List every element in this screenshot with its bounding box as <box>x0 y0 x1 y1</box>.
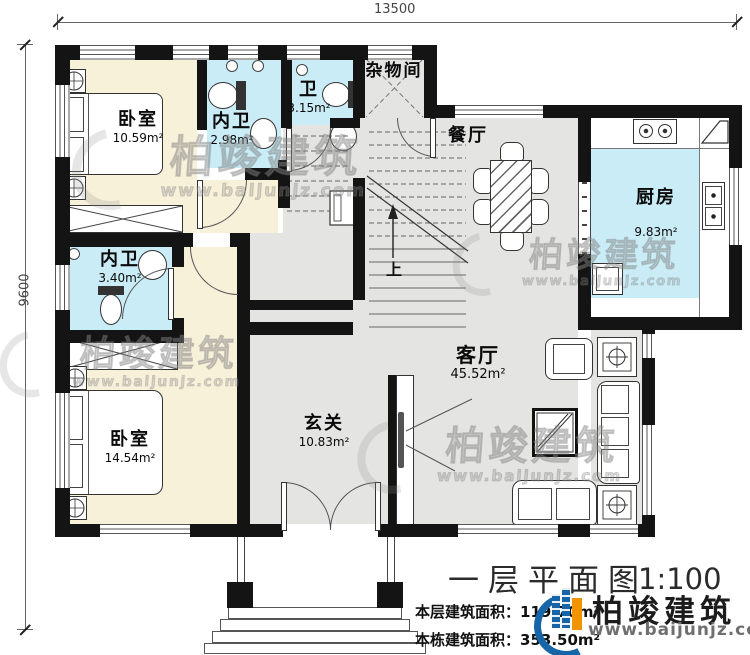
wall-ensuite2-bottom <box>55 330 175 343</box>
porch-step-4 <box>204 643 426 654</box>
stairhall-door-leaf <box>286 128 292 172</box>
wall-kitchen-top <box>578 105 742 118</box>
label-kitchen: 厨房 9.83m² <box>628 188 684 239</box>
brand-logo-icon <box>534 586 590 650</box>
foyer-name: 玄关 <box>296 414 352 434</box>
window-top-4 <box>287 45 320 60</box>
wall-kitchen-left-lower <box>578 254 591 330</box>
window-top-3 <box>228 45 258 60</box>
floor-area-label: 本层建筑面积： <box>415 603 520 621</box>
wc-name: 卫 <box>286 80 332 100</box>
kitchen-area: 9.83m² <box>628 226 684 239</box>
bedroom2-name: 卧室 <box>101 430 159 450</box>
label-ensuite2: 内卫 3.40m² <box>92 250 148 285</box>
coffee-table-detail <box>535 411 575 454</box>
dining-name: 餐厅 <box>441 126 495 146</box>
kitchen-sink-basin-2 <box>705 207 722 226</box>
sofa-bottom-seat-2 <box>556 488 590 520</box>
wall-storage-right <box>424 45 437 118</box>
ensuite1-area: 2.98m² <box>203 134 261 147</box>
left-dimension-label: 9600 <box>18 273 33 306</box>
sofa-right-seat-1 <box>601 385 629 414</box>
storage-name: 杂物间 <box>358 62 430 81</box>
porch-step-1 <box>228 607 402 619</box>
ensuite2-name: 内卫 <box>92 250 148 270</box>
side-table-top-crosshair <box>602 342 632 372</box>
wall-ensuite2-right-a <box>172 247 184 267</box>
kitchen-burner-2 <box>658 124 672 138</box>
porch-post-line-left <box>237 537 245 582</box>
logo-bar-3 <box>572 598 582 630</box>
floor-plan: 13500 9600 <box>0 0 750 655</box>
window-living-east-b <box>642 425 655 515</box>
living-name: 客厅 <box>447 344 509 366</box>
window-living-bottom-b <box>590 524 638 537</box>
sofa-right-seat-3 <box>601 449 629 478</box>
logo-bar-2 <box>562 588 570 628</box>
window-left-bedroom1 <box>55 85 70 157</box>
kitchen-fridge-inner <box>596 267 619 291</box>
sofa-bottom-seat-1 <box>518 488 552 520</box>
kitchen-sliding-door <box>578 182 591 254</box>
tv-leader-lines <box>400 393 478 473</box>
kitchen-corner-shelf <box>700 119 729 145</box>
bed1-divider <box>88 94 89 174</box>
window-left-bedroom2 <box>55 393 70 488</box>
window-dining-north <box>455 105 543 118</box>
stairs-up-label: 上 <box>386 256 402 280</box>
porch-column-left <box>227 582 253 608</box>
entry-door-right-leaf <box>375 482 381 531</box>
wall-below-bedroom1-a <box>55 233 193 247</box>
label-foyer: 玄关 10.83m² <box>296 414 352 449</box>
bedroom2-area: 14.54m² <box>101 452 159 465</box>
wall-stair-bottom-a <box>245 300 353 310</box>
bedroom1-name: 卧室 <box>99 110 177 130</box>
wall-kitchen-left-upper <box>578 105 591 182</box>
label-bedroom2: 卧室 14.54m² <box>101 430 159 465</box>
ensuite1-door-leaf <box>197 180 203 229</box>
storage-door-leaf <box>430 118 436 158</box>
label-ensuite1: 内卫 2.98m² <box>203 112 261 147</box>
window-storage-top <box>368 45 412 60</box>
ensuite1-name: 内卫 <box>203 112 261 132</box>
living-area: 45.52m² <box>447 368 509 382</box>
wall-bottom-window-pier <box>558 524 590 537</box>
porch-column-right <box>377 582 403 608</box>
brand-website: www.baijunjz.com <box>588 620 750 640</box>
label-bedroom1: 卧室 10.59m² <box>99 110 177 145</box>
label-wc: 卫 3.15m² <box>286 80 332 115</box>
logo-bar-1 <box>552 594 560 628</box>
armchair-seat <box>553 344 585 374</box>
dining-chair-right-2 <box>531 199 549 225</box>
porch-step-2 <box>220 619 410 631</box>
dining-chair-left-2 <box>473 199 491 225</box>
sofa-right-seat-2 <box>601 417 629 446</box>
window-living-east-a <box>642 334 655 358</box>
ensuite1-toilet-tank <box>236 81 246 110</box>
porch-step-3 <box>212 631 418 643</box>
wall-below-bedroom1-b <box>230 233 250 247</box>
wall-ensuite2-right-b <box>172 318 184 343</box>
dining-chair-left-1 <box>473 168 491 194</box>
wc-area: 3.15m² <box>286 102 332 115</box>
bed1-headboard-1 <box>68 97 84 132</box>
wall-ensuite1-bottom <box>245 168 281 180</box>
foyer-area: 10.83m² <box>296 436 352 449</box>
window-top-2 <box>173 45 209 60</box>
left-dimension-line <box>25 45 26 630</box>
kitchen-name: 厨房 <box>628 188 684 208</box>
side-table-bottom-crosshair <box>602 490 632 520</box>
dining-chair-top <box>500 142 524 161</box>
window-living-bottom-a <box>458 524 558 537</box>
ensuite1-light-2 <box>252 60 264 72</box>
window-left-ensuite2 <box>55 265 70 310</box>
wall-bottom-foyer-right <box>378 524 437 537</box>
top-dimension-line <box>58 22 737 23</box>
total-area-label: 本栋建筑面积： <box>415 631 520 649</box>
ensuite1-toilet-bowl <box>208 82 238 109</box>
wc-light <box>296 64 308 76</box>
top-dimension-label: 13500 <box>374 2 415 17</box>
bed1-headboard-2 <box>68 137 84 172</box>
window-bedroom1-top <box>80 45 135 60</box>
bed2-divider <box>88 391 89 494</box>
wall-tv <box>388 375 396 530</box>
window-bedroom2-bottom <box>100 524 190 537</box>
label-storage: 杂物间 <box>358 62 430 81</box>
kitchen-sink-basin-1 <box>705 186 722 205</box>
kitchen-burner-1 <box>639 124 653 138</box>
label-living: 客厅 45.52m² <box>447 344 509 382</box>
porch-post-line-right <box>387 537 395 582</box>
wall-stair-bottom-b <box>245 322 353 335</box>
wall-foyer-left <box>237 247 250 537</box>
label-dining: 餐厅 <box>441 126 495 146</box>
wall-living-east-a <box>642 358 655 425</box>
wall-wc-bottom <box>330 118 360 128</box>
dining-chair-bottom <box>500 232 524 251</box>
dining-table <box>490 160 532 233</box>
window-kitchen-east <box>729 168 742 245</box>
ensuite2-toilet-bowl <box>100 294 122 325</box>
wardrobe1-cross <box>63 205 183 233</box>
dining-chair-right-1 <box>531 168 549 194</box>
bedroom1-area: 10.59m² <box>99 132 177 145</box>
ensuite2-area: 3.40m² <box>92 272 148 285</box>
wall-wc-storage <box>353 45 365 118</box>
ensuite2-door-leaf <box>168 268 174 320</box>
wall-kitchen-bottom <box>578 317 742 330</box>
wall-stair-mid <box>353 178 365 300</box>
ensuite1-light-1 <box>226 60 238 72</box>
entry-door-left-leaf <box>281 482 287 531</box>
